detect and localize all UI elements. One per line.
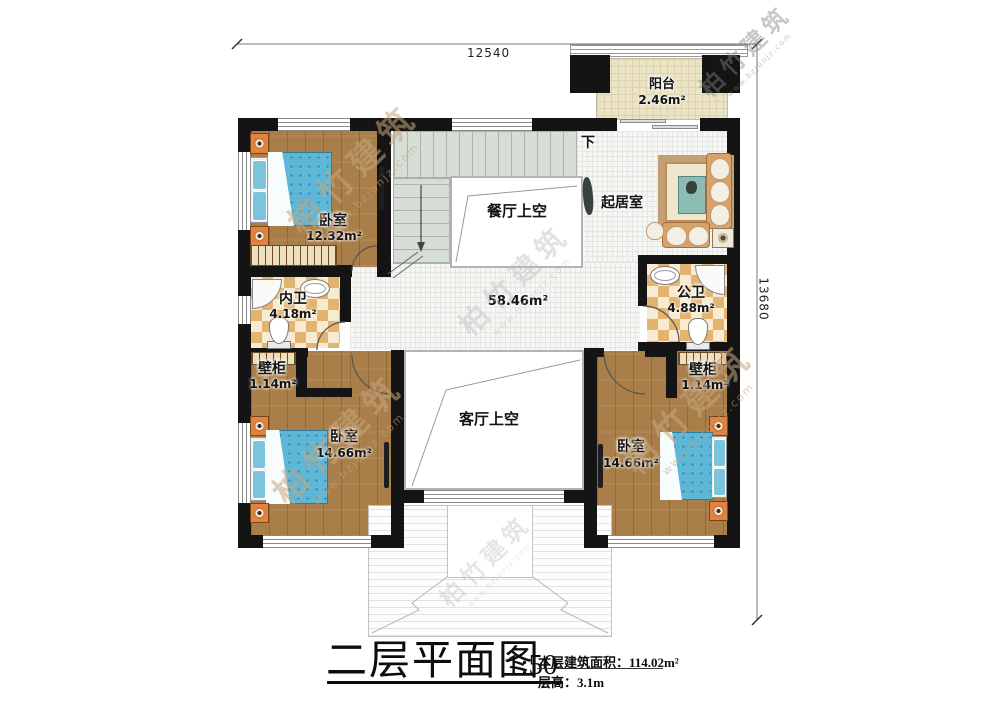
floor-height-row: 层高：3.1m xyxy=(538,672,604,691)
wall-segment xyxy=(666,351,677,398)
balcony-column xyxy=(702,55,740,93)
bedroom-bottom-right-label: 卧室 xyxy=(617,440,645,455)
window xyxy=(424,490,564,503)
pillow xyxy=(252,160,267,190)
floor-area-value: 114.02m² xyxy=(629,655,679,670)
wall-segment xyxy=(340,277,351,322)
wardrobe xyxy=(250,245,337,266)
nightstand xyxy=(250,133,269,154)
nightstand xyxy=(709,501,728,521)
dimension-width: 12540 xyxy=(467,46,510,60)
bedroom-top-left-area: 12.32m² xyxy=(306,230,362,242)
closet-left-label: 壁柜 xyxy=(258,362,286,377)
balcony-area: 2.46m² xyxy=(638,94,685,106)
window xyxy=(278,118,350,131)
window xyxy=(263,535,371,548)
porch-roof-flat xyxy=(447,505,533,578)
wall-segment xyxy=(238,265,352,277)
window xyxy=(608,535,714,548)
stairs-left-run xyxy=(393,178,450,264)
wall-segment xyxy=(577,118,617,131)
dining-void-label: 餐厅上空 xyxy=(487,204,547,220)
floor-height-label: 层高： xyxy=(538,675,577,690)
pillow xyxy=(252,470,266,499)
closet-right-area: 1.14m² xyxy=(681,379,728,391)
nightstand xyxy=(250,503,269,523)
tv-unit xyxy=(384,442,389,488)
public-bath-label: 公卫 xyxy=(677,286,705,301)
sofa-cushion xyxy=(688,226,709,246)
wall-segment xyxy=(584,350,597,548)
plant-icon xyxy=(686,181,697,194)
private-bath-area: 4.18m² xyxy=(269,308,316,320)
pillow xyxy=(713,439,726,467)
pillow xyxy=(252,440,266,469)
sofa-cushion xyxy=(710,158,730,180)
nightstand xyxy=(250,226,269,246)
balcony-column xyxy=(570,55,610,93)
sink-icon xyxy=(650,266,680,285)
bedroom-bottom-left-area: 14.66m² xyxy=(316,447,372,459)
floor-height-value: 3.1m xyxy=(577,675,604,690)
sofa-cushion xyxy=(710,181,730,203)
wall-segment xyxy=(296,388,352,397)
sofa-cushion xyxy=(710,204,730,226)
wall-segment xyxy=(391,350,404,548)
sliding-door-leaf xyxy=(620,119,666,123)
dimension-height: 13680 xyxy=(757,277,771,320)
balcony-label: 阳台 xyxy=(649,78,675,92)
pillow xyxy=(713,468,726,496)
title-underline xyxy=(327,681,563,684)
window xyxy=(452,118,532,131)
door-recess-floor xyxy=(350,352,394,396)
hall-area-label: 58.46m² xyxy=(488,295,548,309)
window xyxy=(238,296,251,324)
sliding-door-leaf xyxy=(652,125,698,129)
floor-area-row: 本层建筑面积：114.02m² xyxy=(538,652,679,671)
living-void-label: 客厅上空 xyxy=(459,412,519,428)
closet-left-area: 1.14m² xyxy=(249,378,296,390)
dining-void-opening xyxy=(450,176,583,268)
bedroom-bottom-left-label: 卧室 xyxy=(330,430,358,445)
sofa-cushion xyxy=(666,226,687,246)
closet-right-label: 壁柜 xyxy=(689,363,717,378)
bedroom-bottom-right-area: 14.66m² xyxy=(603,457,659,469)
stairs-upper-run xyxy=(393,131,577,178)
wall-segment xyxy=(584,348,604,357)
wall-segment xyxy=(638,264,647,306)
public-bath-area: 4.88m² xyxy=(667,302,714,314)
sofa-cushion xyxy=(646,222,664,240)
sitting-room-label: 起居室 xyxy=(601,196,643,211)
tv-unit xyxy=(379,166,384,210)
floor-area-label: 本层建筑面积： xyxy=(538,655,629,670)
bedroom-top-left-label: 卧室 xyxy=(319,214,347,229)
wall-segment xyxy=(645,348,670,357)
stairs-down-label: 下 xyxy=(581,136,595,151)
pillow xyxy=(252,191,267,221)
wall-segment xyxy=(638,255,740,264)
floor-plan-canvas: 12540 13680 阳台 2.46m² 下 卧室 12.32m² 餐厅上空 … xyxy=(0,0,1000,706)
side-table-lamp xyxy=(712,228,734,248)
private-bath-label: 内卫 xyxy=(279,292,307,307)
